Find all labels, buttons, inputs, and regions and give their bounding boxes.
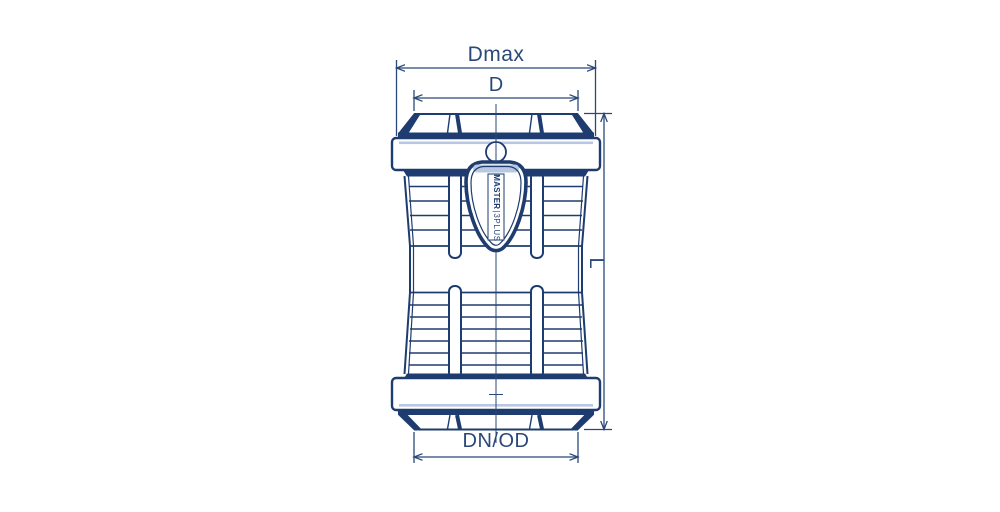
dim-label-dmax: Dmax (396, 43, 596, 67)
bottom-grip-tooth-right (530, 415, 543, 429)
top-grip-tooth-right (530, 114, 543, 133)
body-right-outer-edge (582, 176, 588, 374)
product-label-brand: MASTER (492, 174, 501, 209)
bottom-grip-left-slant (399, 415, 421, 430)
upper-right-post (531, 172, 543, 258)
product-label-model: 3PLUS (492, 213, 501, 241)
top-grip-right-slant (572, 114, 593, 133)
bottom-grip-tooth-left (448, 415, 461, 429)
dim-label-d: D (414, 74, 578, 97)
lower-left-post (449, 286, 461, 378)
body-left-outer-edge (405, 176, 411, 374)
drawing-canvas: Dmax D L DN/OD MASTER|3PLUS (0, 0, 1000, 512)
product-label: MASTER|3PLUS (489, 173, 503, 243)
dim-label-dnod: DN/OD (414, 430, 578, 453)
top-grip-tooth-left (448, 114, 461, 133)
teardrop-shading (473, 165, 519, 173)
dim-label-l: L (584, 251, 608, 275)
top-grip-left-slant (399, 114, 420, 133)
bottom-grip-right-slant (571, 415, 593, 430)
lower-right-post (531, 286, 543, 378)
upper-left-post (449, 172, 461, 258)
